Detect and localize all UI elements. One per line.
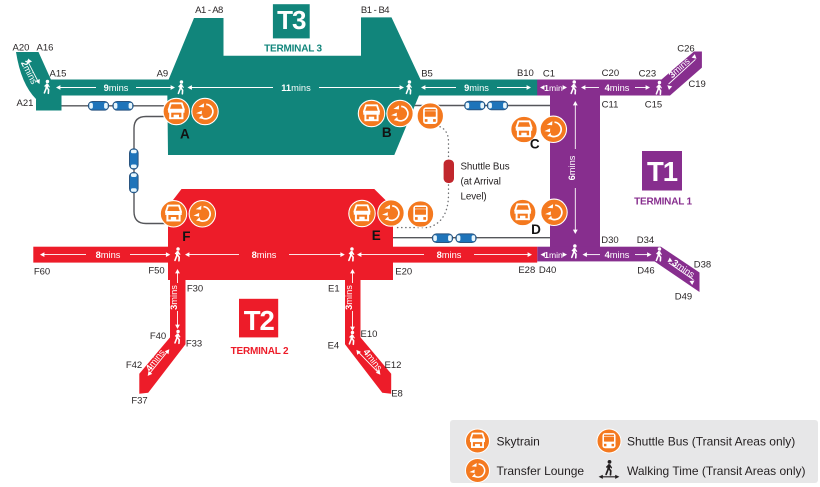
svg-text:B: B <box>382 125 392 140</box>
svg-text:Walking Time (Transit Areas on: Walking Time (Transit Areas only) <box>627 464 806 478</box>
svg-text:9mins: 9mins <box>464 83 489 93</box>
svg-text:E1: E1 <box>328 284 340 295</box>
svg-text:Shuttle Bus (Transit Areas onl: Shuttle Bus (Transit Areas only) <box>627 435 795 449</box>
svg-text:F60: F60 <box>34 267 50 278</box>
svg-text:3mins: 3mins <box>169 285 179 310</box>
svg-text:Skytrain: Skytrain <box>497 435 540 449</box>
svg-text:4mins: 4mins <box>605 250 630 260</box>
svg-text:Shuttle Bus: Shuttle Bus <box>461 161 510 172</box>
svg-text:E: E <box>372 228 381 243</box>
svg-text:D49: D49 <box>675 292 692 303</box>
svg-text:F: F <box>182 229 190 244</box>
svg-text:T3: T3 <box>277 5 306 35</box>
svg-text:C23: C23 <box>639 69 656 80</box>
svg-text:11mins: 11mins <box>281 83 311 93</box>
svg-text:F33: F33 <box>186 339 202 350</box>
svg-text:F37: F37 <box>131 396 147 407</box>
svg-text:C26: C26 <box>677 44 694 55</box>
svg-text:A9: A9 <box>157 68 169 79</box>
svg-text:8mins: 8mins <box>252 250 277 260</box>
svg-text:D30: D30 <box>601 235 618 246</box>
svg-text:TERMINAL 2: TERMINAL 2 <box>231 346 289 357</box>
svg-text:Level): Level) <box>461 192 487 203</box>
svg-text:TERMINAL 1: TERMINAL 1 <box>634 197 692 208</box>
svg-text:E20: E20 <box>395 267 412 278</box>
svg-text:D46: D46 <box>637 266 654 277</box>
svg-text:D38: D38 <box>694 260 711 271</box>
svg-text:D34: D34 <box>637 235 654 246</box>
svg-text:C11: C11 <box>602 100 619 111</box>
svg-text:F40: F40 <box>150 331 166 342</box>
svg-text:C20: C20 <box>602 68 619 79</box>
svg-text:T1: T1 <box>647 156 678 187</box>
svg-text:6mins: 6mins <box>567 155 577 180</box>
svg-text:Transfer Lounge: Transfer Lounge <box>497 464 585 478</box>
svg-text:F50: F50 <box>148 266 164 277</box>
svg-text:E4: E4 <box>328 341 340 352</box>
svg-text:1min: 1min <box>544 83 563 93</box>
svg-text:C: C <box>530 137 540 152</box>
svg-text:A21: A21 <box>17 98 34 109</box>
svg-text:F42: F42 <box>126 360 142 371</box>
svg-text:B5: B5 <box>421 68 433 79</box>
svg-text:D40: D40 <box>539 265 556 276</box>
svg-text:TERMINAL 3: TERMINAL 3 <box>264 44 322 55</box>
svg-text:A1 - A8: A1 - A8 <box>195 5 223 16</box>
svg-text:8mins: 8mins <box>437 250 462 260</box>
svg-text:E8: E8 <box>391 389 403 400</box>
svg-text:D: D <box>531 222 541 237</box>
svg-text:C1: C1 <box>543 69 555 80</box>
svg-text:C19: C19 <box>688 79 705 90</box>
svg-text:A20: A20 <box>13 43 30 54</box>
svg-text:3mins: 3mins <box>344 285 354 310</box>
svg-text:E12: E12 <box>385 360 402 371</box>
svg-text:E10: E10 <box>361 329 378 340</box>
svg-text:9mins: 9mins <box>104 83 129 93</box>
svg-text:C15: C15 <box>645 100 662 111</box>
svg-text:T2: T2 <box>244 305 275 336</box>
svg-text:F30: F30 <box>187 284 203 295</box>
svg-text:B1 - B4: B1 - B4 <box>361 5 389 16</box>
svg-text:E28: E28 <box>518 265 535 276</box>
svg-text:4mins: 4mins <box>605 83 630 93</box>
svg-text:B10: B10 <box>517 68 534 79</box>
svg-text:(at Arrival: (at Arrival <box>461 177 501 188</box>
svg-text:A: A <box>180 126 190 141</box>
svg-text:8mins: 8mins <box>96 250 121 260</box>
svg-text:A16: A16 <box>37 43 54 54</box>
svg-text:1min: 1min <box>544 250 563 260</box>
svg-text:A15: A15 <box>50 69 67 80</box>
